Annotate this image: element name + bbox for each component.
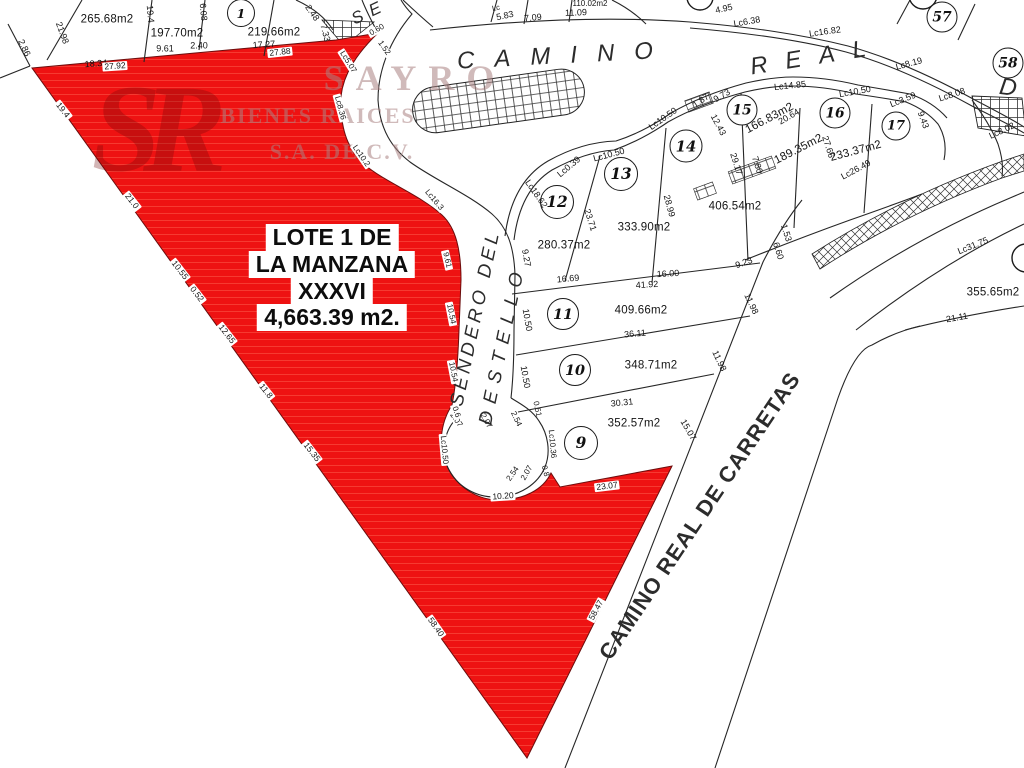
dimension-label: Lc — [491, 4, 500, 13]
highlighted-lot-label-line-2: XXXVI — [291, 278, 373, 305]
dimension-label: 11.09 — [565, 8, 587, 18]
edge-dimension-chip: 27.92 — [102, 61, 128, 71]
lot-number-58[interactable]: 58 — [993, 48, 1024, 79]
highlighted-lot-label: LOTE 1 DELA MANZANAXXXVI4,663.39 m2. — [249, 224, 415, 331]
lot-number-10[interactable]: 10 — [559, 354, 591, 386]
dimension-label: 6.08 — [198, 3, 208, 21]
watermark-text-1: BIENES RAICES — [220, 103, 415, 129]
edge-dimension-chip: Lc10.50 — [439, 433, 450, 466]
lot-number-11[interactable]: 11 — [547, 298, 579, 330]
lot-number-16[interactable]: 16 — [820, 98, 851, 129]
lot-area-label: 280.37m2 — [538, 240, 591, 252]
dimension-label: 2.40 — [190, 42, 208, 51]
dimension-label: 9.27 — [520, 249, 532, 268]
lot-area-label: 409.66m2 — [615, 305, 668, 317]
dimension-label: 41.92 — [636, 280, 659, 290]
driveway-strip-3 — [694, 182, 717, 200]
lot-area-label: 265.68m2 — [81, 14, 134, 26]
dimension-label: 16.00 — [657, 269, 680, 279]
highlighted-lot-label-line-1: LA MANZANA — [249, 251, 415, 278]
watermark-logo: SR — [92, 59, 209, 202]
lot-area-label: 348.71m2 — [625, 360, 678, 372]
cadastral-map: SRSAYROBIENES RAICESS.A. DE C.V. LOTE 1 … — [0, 0, 1024, 768]
lot-number-17[interactable]: 17 — [882, 112, 911, 141]
dimension-label: 9.61 — [156, 45, 174, 54]
watermark-text-2: S.A. DE C.V. — [270, 139, 415, 165]
lot-number-13[interactable]: 13 — [604, 157, 638, 191]
dimension-label: 36.11 — [624, 329, 647, 340]
lot-area-label: 352.57m2 — [608, 418, 661, 430]
highlighted-lot-label-line-0: LOTE 1 DE — [266, 224, 399, 251]
highlighted-lot-label-line-3: 4,663.39 m2. — [257, 304, 407, 331]
edge-dimension-chip: 10.20 — [490, 491, 516, 501]
lot-number-1[interactable]: 1 — [227, 0, 255, 27]
lot-area-label: 219.66m2 — [248, 27, 301, 39]
dimension-label: Lc10.36 — [547, 429, 557, 458]
lot-area-label: 355.65m2 — [967, 287, 1020, 299]
dimension-label: 19.4 — [145, 5, 155, 23]
lot-number-9[interactable]: 9 — [564, 426, 598, 460]
lot-number-57[interactable]: 57 — [927, 2, 958, 33]
lot-area-label: 197.70m2 — [151, 28, 204, 40]
dimension-label: 0.8 — [540, 465, 551, 478]
lot-number-14[interactable]: 14 — [670, 130, 703, 163]
dimension-label: 7.09 — [524, 13, 542, 24]
lot-area-label: 333.90m2 — [618, 222, 671, 234]
lot-area-label: 406.54m2 — [709, 201, 762, 213]
